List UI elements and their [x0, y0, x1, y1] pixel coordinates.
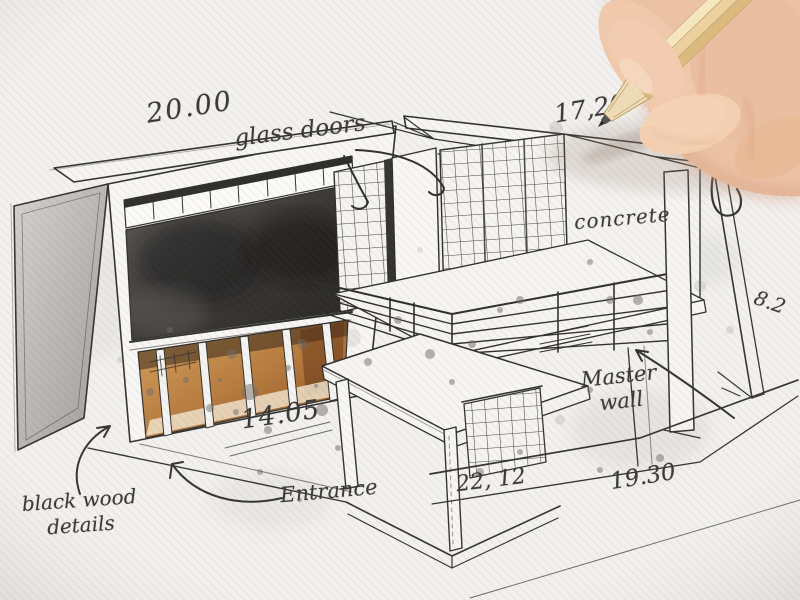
hand-photo	[0, 0, 800, 600]
sketch-scene: 20.00 glass doors 17,20 s de concrete 8.…	[0, 0, 800, 600]
